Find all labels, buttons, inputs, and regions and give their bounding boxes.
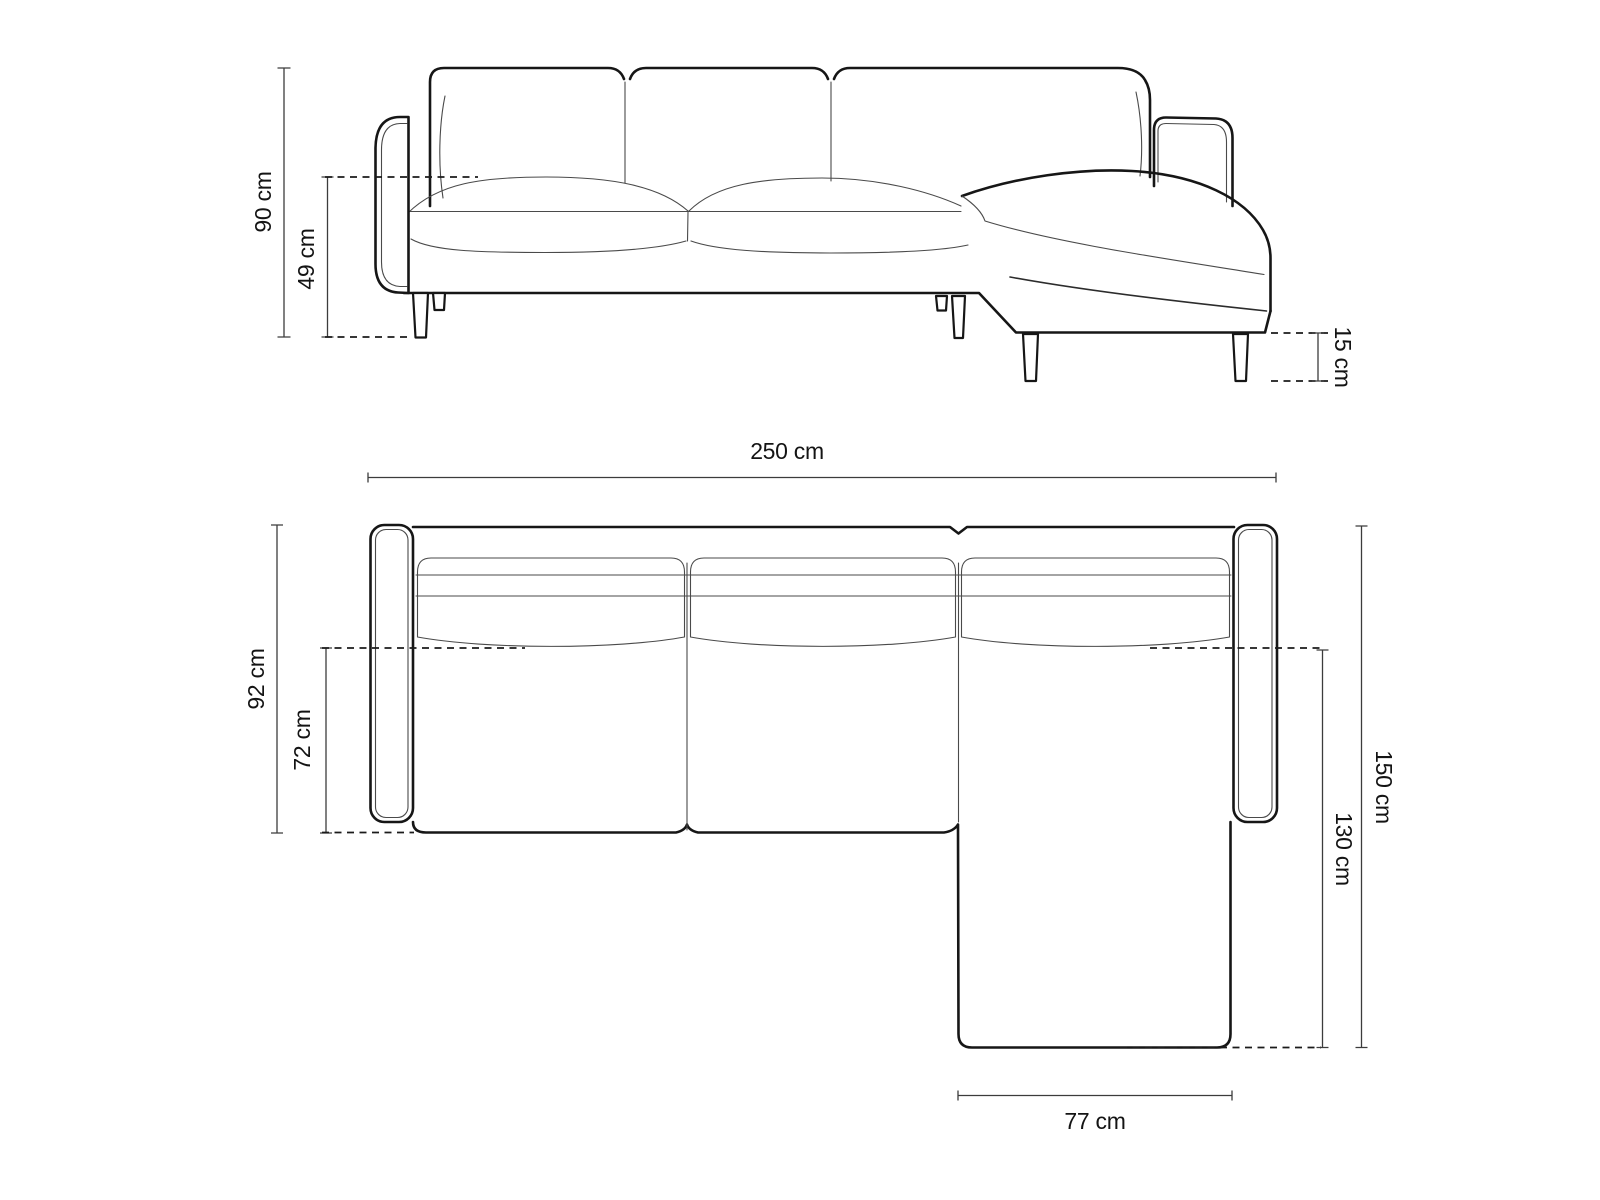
plan-view: 250 cm 92 cm 72 cm 150 cm 130 cm	[243, 438, 1397, 1134]
plan-body-front-and-chaise-outline	[413, 822, 1231, 1048]
dim-label-total-depth: 92 cm	[243, 648, 269, 709]
dimension-total-height: 90 cm	[250, 68, 290, 337]
dim-label-chaise-outer-length: 150 cm	[1371, 750, 1397, 824]
dim-label-total-height: 90 cm	[250, 171, 276, 232]
plan-right-armrest	[1234, 525, 1278, 822]
dim-label-chaise-width: 77 cm	[1064, 1108, 1125, 1134]
plan-body-back-edge	[413, 527, 1234, 534]
plan-left-armrest	[371, 525, 414, 822]
front-base-outline	[404, 293, 1271, 333]
dimension-leg-height: 15 cm	[1271, 326, 1356, 387]
dim-label-seat-depth: 72 cm	[289, 709, 315, 770]
sofa-dimension-diagram: 90 cm 49 cm 15 cm	[0, 0, 1600, 1200]
dim-label-seat-height: 49 cm	[293, 228, 319, 289]
dimension-total-depth: 92 cm	[243, 525, 283, 833]
dimension-chaise-outer-length: 150 cm	[1356, 526, 1397, 1048]
front-seat-cushions	[408, 177, 968, 253]
diagram-canvas: 90 cm 49 cm 15 cm	[0, 0, 1600, 1200]
dim-label-chaise-length: 130 cm	[1331, 812, 1357, 886]
front-elevation-view: 90 cm 49 cm 15 cm	[250, 68, 1356, 388]
dimension-chaise-width: 77 cm	[958, 1091, 1232, 1135]
front-back-cushions	[430, 68, 1150, 206]
dim-label-total-width: 250 cm	[750, 438, 824, 464]
dim-label-leg-height: 15 cm	[1330, 326, 1356, 387]
dimension-total-width: 250 cm	[368, 438, 1276, 482]
plan-back-cushions	[416, 558, 1231, 830]
front-chaise	[962, 170, 1271, 311]
front-left-armrest	[376, 117, 409, 293]
front-legs	[413, 293, 1248, 381]
